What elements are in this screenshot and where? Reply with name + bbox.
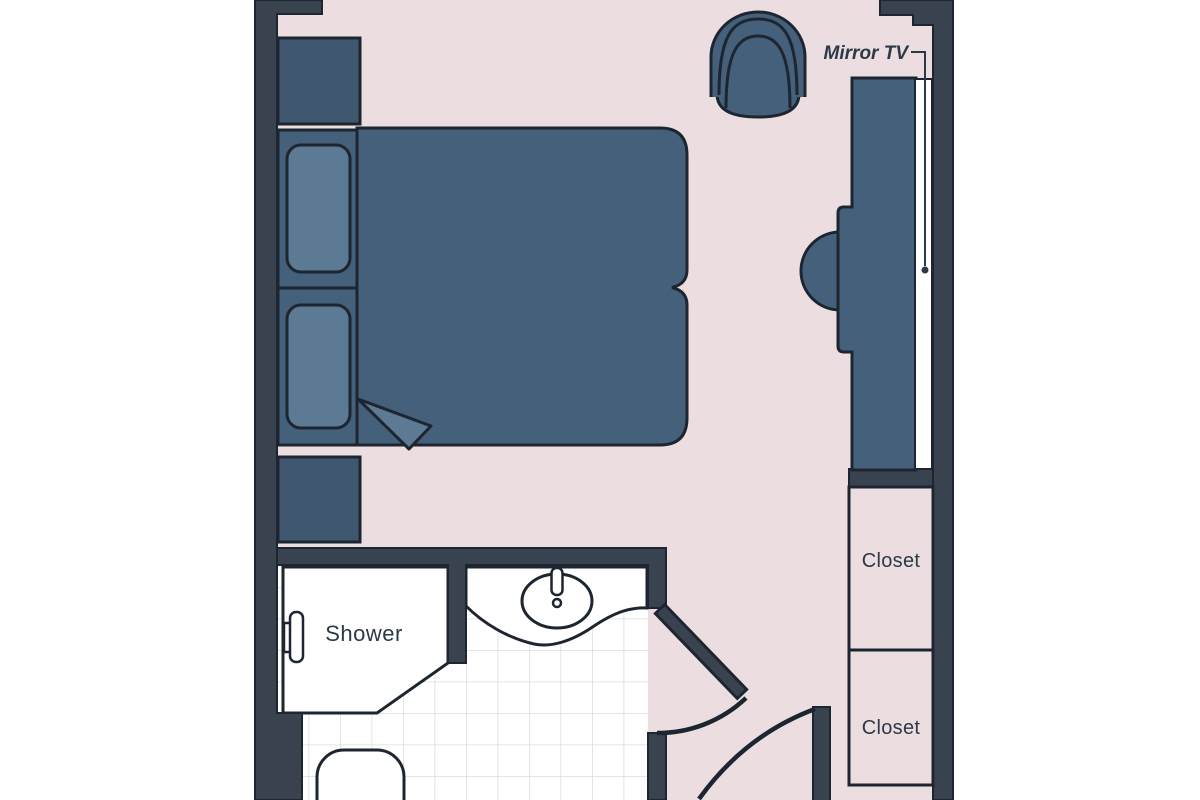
label-closet-top: Closet <box>862 550 921 572</box>
label-mirror-tv: Mirror TV <box>824 43 910 64</box>
shower-head-icon <box>290 612 303 662</box>
wall-closet-top <box>849 469 933 487</box>
toilet <box>317 750 404 800</box>
floor-plan-svg: Shower Closet Closet Mirror TV <box>0 0 1200 800</box>
label-shower: Shower <box>325 621 403 646</box>
mirror-tv-strip <box>915 79 932 469</box>
sink-drain-icon <box>553 599 561 607</box>
nightstand-bottom <box>278 457 360 542</box>
sink-faucet-icon <box>552 568 563 595</box>
pillow-top <box>287 145 350 272</box>
mirror-tv-leader-dot <box>922 267 929 274</box>
entry-door-leaf <box>813 707 830 800</box>
wall-bathroom-lower <box>648 733 666 800</box>
bed <box>357 128 687 445</box>
floor-plan-page: Shower Closet Closet Mirror TV <box>0 0 1200 800</box>
pillow-bottom <box>287 305 350 428</box>
label-closet-bottom: Closet <box>862 717 921 739</box>
nightstand-top <box>278 38 360 124</box>
